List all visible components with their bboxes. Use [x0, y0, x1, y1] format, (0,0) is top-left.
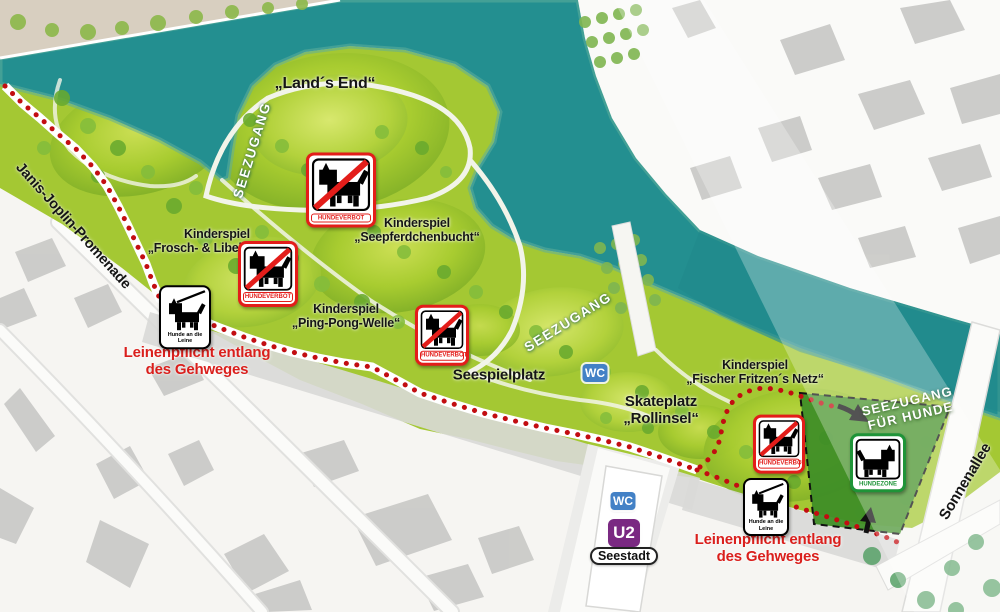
station-name-badge: Seestadt	[590, 547, 658, 565]
hundeverbot-sign-2: HUNDEVERBOT	[238, 241, 298, 307]
hundeverbot-caption: HUNDEVERBOT	[758, 459, 800, 469]
seespielplatz-label: Seespielplatz	[453, 368, 545, 385]
hundeverbot-caption: HUNDEVERBOT	[420, 351, 464, 361]
map-artwork	[0, 0, 1000, 612]
hundeverbot-caption: HUNDEVERBOT	[243, 292, 293, 302]
no-dogs-icon	[311, 157, 371, 212]
hundeverbot-caption: HUNDEVERBOT	[311, 213, 371, 223]
hundezone-caption: HUNDEZONE	[855, 480, 901, 488]
dog-on-leash-icon	[163, 290, 207, 332]
leash-rule-south-note: Leinenpflicht entlang des Gehweges	[695, 532, 842, 566]
no-dogs-icon	[758, 420, 800, 458]
lands-end-label: „Land´s End“	[275, 75, 376, 93]
no-dogs-icon	[243, 246, 293, 291]
leash-sign-caption: Hunde an die Leine	[163, 332, 207, 345]
no-dogs-icon	[420, 310, 464, 350]
dog-on-leash-icon	[747, 483, 785, 519]
leash-sign-west: Hunde an die Leine	[159, 285, 211, 349]
skateplatz-label: Skateplatz „Rollinsel“	[623, 394, 698, 428]
leash-rule-west-note: Leinenpflicht entlang des Gehweges	[124, 345, 271, 379]
hundeverbot-sign-4: HUNDEVERBOT	[753, 415, 805, 474]
hundezone-sign: HUNDEZONE	[850, 433, 906, 492]
leash-sign-caption: Hunde an die Leine	[747, 519, 785, 532]
leash-sign-south: Hunde an die Leine	[743, 478, 789, 536]
dog-zone-icon	[855, 438, 901, 480]
u2-badge: U2	[608, 519, 640, 547]
playground-fischer-label: Kinderspiel „Fischer Fritzen´s Netz“	[686, 358, 824, 386]
wc-badge-park: WC	[583, 364, 608, 382]
playground-pingpong-label: Kinderspiel „Ping-Pong-Welle“	[292, 302, 400, 330]
park-map: „Land´s End“ SEEZUGANG SEEZUGANG Janis-J…	[0, 0, 1000, 612]
wc-badge-station: WC	[611, 492, 636, 510]
hundeverbot-sign-3: HUNDEVERBOT	[415, 305, 469, 366]
hundeverbot-sign-1: HUNDEVERBOT	[306, 152, 376, 227]
